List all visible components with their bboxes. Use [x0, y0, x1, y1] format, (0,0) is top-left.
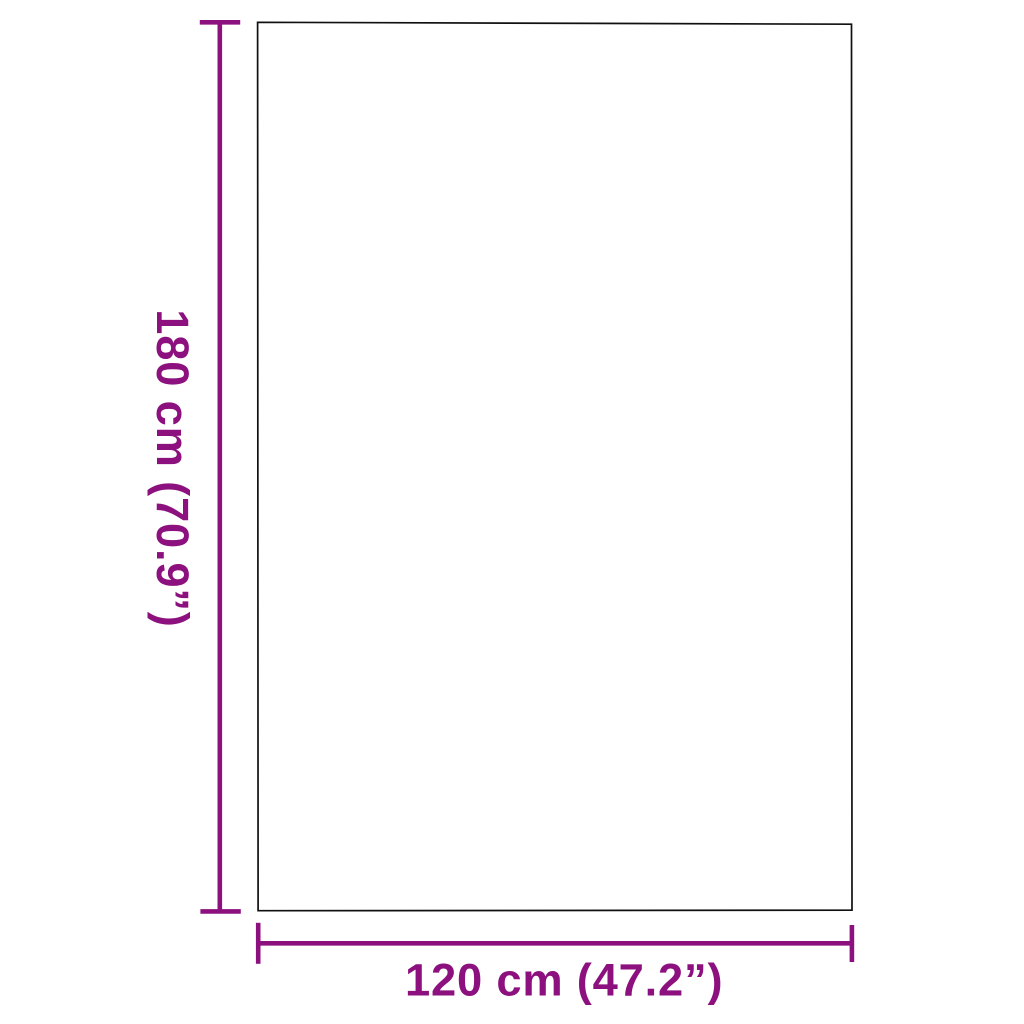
svg-text:180 cm (70.9”): 180 cm (70.9”)	[147, 309, 198, 627]
svg-text:120 cm (47.2”): 120 cm (47.2”)	[405, 954, 723, 1005]
